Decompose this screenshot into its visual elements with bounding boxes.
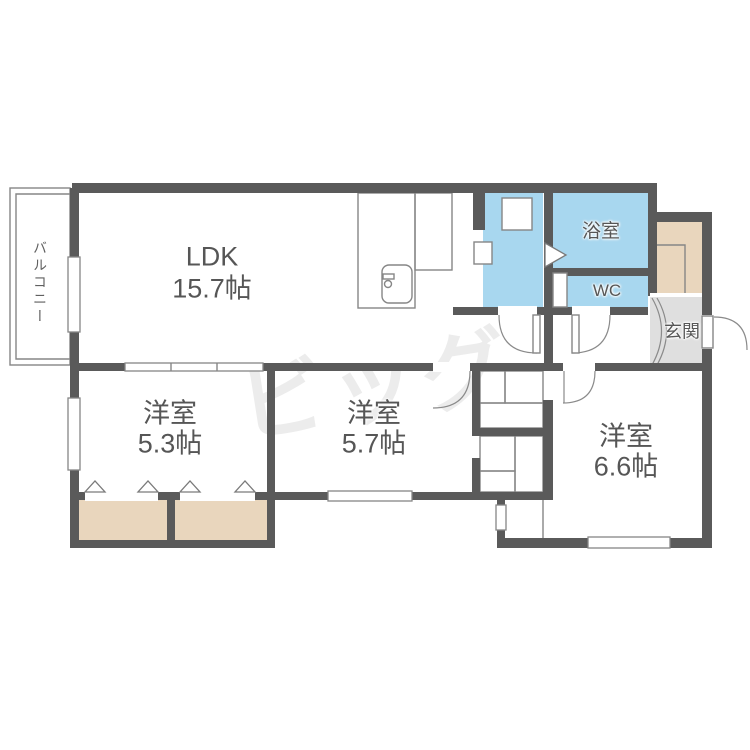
kitchen-counter	[358, 193, 452, 308]
front-door-swing	[714, 317, 747, 350]
bedroom-66-label: 洋室	[599, 421, 653, 452]
washroom-niche	[474, 242, 492, 264]
window-bedroom-57	[328, 491, 412, 501]
bedroom-57-size-label: 5.7帖	[342, 428, 407, 459]
closet-left-floor	[75, 498, 167, 540]
pipe-space	[553, 273, 567, 307]
floorplan-page: ビッグ	[0, 0, 750, 750]
window-bedroom-66-side	[496, 505, 506, 530]
washing-machine-pan	[502, 198, 532, 230]
bedroom-53-label: 洋室	[143, 398, 197, 429]
window-ldk	[68, 257, 80, 332]
ldk-label: LDK	[186, 241, 239, 272]
bedroom-66-size-label: 6.6帖	[594, 451, 659, 482]
wc-label: WC	[593, 281, 621, 301]
closet-cells	[480, 371, 543, 538]
ldk-size-label: 15.7帖	[172, 273, 252, 304]
sliding-door-ldk	[125, 363, 263, 371]
kitchen-sink	[382, 265, 412, 303]
entrance-label: 玄関	[664, 322, 700, 343]
bedroom-57-label: 洋室	[347, 398, 401, 429]
floorplan-drawing	[0, 0, 750, 750]
bathroom-label: 浴室	[582, 221, 620, 243]
shoe-closet-floor	[653, 222, 702, 293]
front-door-leaf	[702, 316, 713, 348]
window-bedroom-53	[68, 398, 80, 470]
bedroom-53-size-label: 5.3帖	[138, 428, 203, 459]
closet-right-floor	[175, 498, 267, 540]
window-bedroom-66	[588, 537, 670, 548]
balcony-label: バルコニー	[32, 241, 48, 326]
